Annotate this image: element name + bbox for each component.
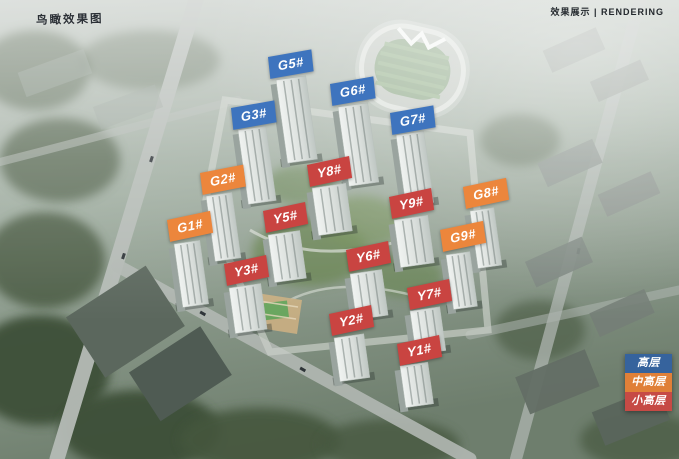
building-label-G9: G9# bbox=[440, 221, 486, 252]
building-labels-layer: G5#G6#G3#G7#G2#G1#G8#G9#Y8#Y9#Y5#Y6#Y3#Y… bbox=[0, 0, 679, 459]
building-label-Y1: Y1# bbox=[397, 335, 442, 366]
building-label-G2: G2# bbox=[200, 165, 246, 195]
building-label-Y9: Y9# bbox=[389, 188, 434, 219]
legend-item-mid_high_rise: 中高层 bbox=[625, 373, 672, 392]
building-label-Y7: Y7# bbox=[407, 279, 452, 310]
legend: 高层中高层小高层 bbox=[625, 354, 672, 411]
building-label-G3: G3# bbox=[231, 100, 277, 130]
building-label-Y2: Y2# bbox=[329, 305, 374, 336]
building-label-G6: G6# bbox=[330, 76, 376, 106]
building-label-Y8: Y8# bbox=[307, 156, 352, 187]
legend-item-high_rise: 高层 bbox=[625, 354, 672, 373]
aerial-rendering: 鸟瞰效果图 效果展示 | RENDERING G5#G6#G3#G7#G2#G1… bbox=[0, 0, 679, 459]
building-label-Y3: Y3# bbox=[224, 255, 269, 286]
building-label-G5: G5# bbox=[268, 49, 314, 79]
building-label-Y6: Y6# bbox=[346, 241, 391, 272]
building-label-G8: G8# bbox=[463, 178, 509, 209]
legend-item-small_high_rise: 小高层 bbox=[625, 392, 672, 411]
building-label-G7: G7# bbox=[390, 105, 436, 135]
building-label-G1: G1# bbox=[167, 211, 213, 242]
building-label-Y5: Y5# bbox=[263, 202, 308, 233]
